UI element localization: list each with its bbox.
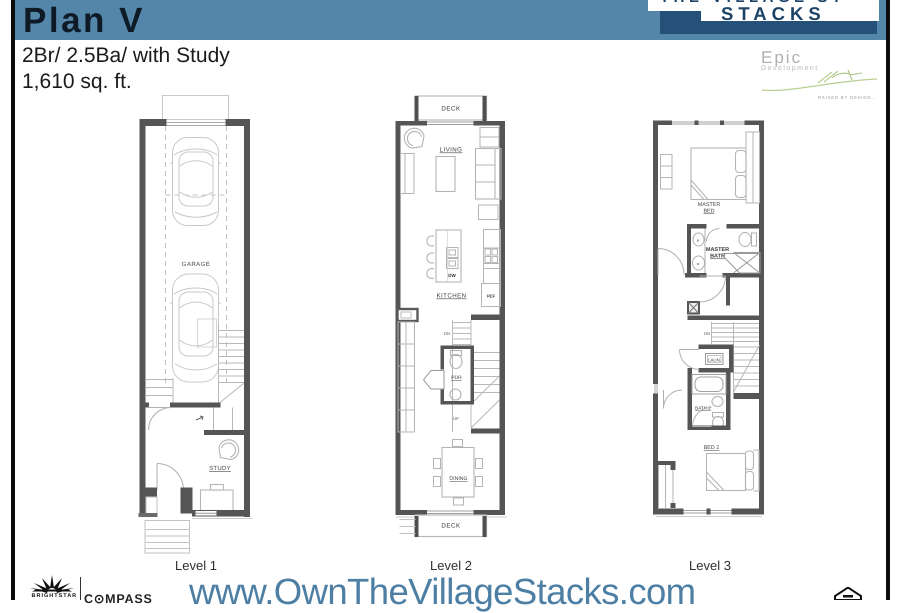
svg-text:DN: DN [704, 331, 710, 336]
svg-text:KITCHEN: KITCHEN [437, 293, 467, 300]
svg-text:MASTER: MASTER [706, 247, 729, 253]
svg-text:DW: DW [448, 273, 456, 278]
svg-text:DECK: DECK [441, 523, 461, 530]
svg-text:DINING: DINING [449, 476, 467, 482]
svg-text:LAUN.: LAUN. [708, 358, 721, 363]
svg-text:PDR: PDR [451, 375, 462, 381]
svg-text:REF: REF [487, 294, 496, 299]
svg-text:MASTER: MASTER [698, 202, 721, 208]
svg-text:BED: BED [703, 209, 714, 215]
svg-text:UP: UP [453, 416, 459, 421]
svg-text:STUDY: STUDY [209, 465, 231, 472]
svg-text:DECK: DECK [441, 106, 461, 113]
svg-text:LIVING: LIVING [440, 147, 463, 154]
svg-text:GARAGE: GARAGE [182, 261, 211, 268]
svg-text:BED 2: BED 2 [704, 445, 720, 451]
svg-text:DN: DN [444, 331, 450, 336]
